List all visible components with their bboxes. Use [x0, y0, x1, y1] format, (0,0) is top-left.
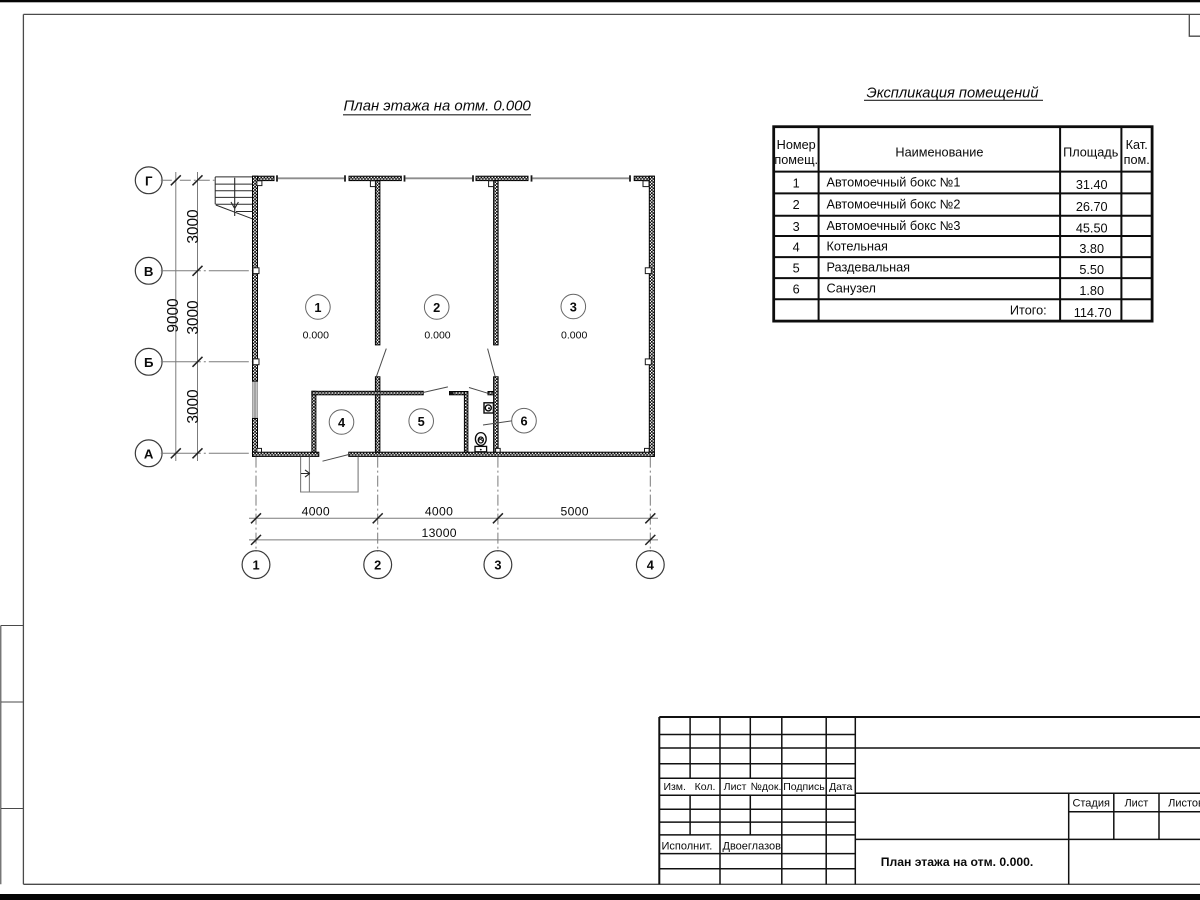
svg-text:Площадь: Площадь [1063, 145, 1119, 159]
svg-text:План этажа на отм. 0.000.: План этажа на отм. 0.000. [881, 855, 1034, 869]
svg-text:13000: 13000 [422, 526, 457, 540]
svg-text:5: 5 [793, 262, 800, 276]
svg-text:Стадия: Стадия [1072, 798, 1110, 810]
svg-text:Наименование: Наименование [895, 145, 983, 159]
svg-text:5.50: 5.50 [1079, 263, 1104, 277]
svg-text:помещ.: помещ. [774, 153, 818, 167]
svg-text:План этажа на отм. 0.000: План этажа на отм. 0.000 [344, 98, 532, 114]
svg-text:2: 2 [433, 300, 440, 315]
svg-text:2: 2 [793, 198, 800, 212]
svg-text:Листов: Листов [1168, 798, 1200, 810]
svg-text:Дата: Дата [829, 781, 852, 793]
svg-text:114.70: 114.70 [1074, 306, 1112, 320]
svg-text:3.80: 3.80 [1079, 242, 1104, 256]
svg-text:3000: 3000 [185, 300, 202, 334]
svg-text:Автомоечный бокс №2: Автомоечный бокс №2 [827, 197, 961, 211]
svg-text:В: В [144, 264, 154, 279]
svg-text:3000: 3000 [185, 209, 202, 243]
svg-text:3: 3 [494, 558, 501, 573]
svg-text:Котельная: Котельная [827, 240, 888, 254]
svg-text:№док.: №док. [751, 781, 782, 793]
svg-text:1: 1 [314, 300, 321, 315]
svg-text:Санузел: Санузел [827, 282, 876, 296]
svg-text:Номер: Номер [777, 138, 816, 152]
svg-text:Автомоечный бокс №1: Автомоечный бокс №1 [827, 176, 961, 190]
svg-text:Лист: Лист [724, 781, 747, 793]
svg-text:пом.: пом. [1124, 153, 1150, 167]
svg-text:1: 1 [793, 176, 800, 190]
svg-text:Г: Г [145, 173, 153, 188]
svg-text:4: 4 [338, 415, 346, 430]
svg-text:5000: 5000 [561, 505, 589, 519]
svg-text:26.70: 26.70 [1076, 200, 1108, 214]
svg-text:31.40: 31.40 [1076, 178, 1108, 192]
svg-text:Автомоечный бокс №3: Автомоечный бокс №3 [827, 219, 961, 233]
svg-text:1: 1 [252, 558, 259, 573]
svg-text:4000: 4000 [302, 505, 330, 519]
svg-text:Лист: Лист [1124, 798, 1148, 810]
svg-text:2: 2 [374, 558, 381, 573]
svg-text:Кол.: Кол. [695, 781, 716, 793]
svg-text:Двоеглазов: Двоеглазов [723, 841, 782, 853]
svg-text:0.000: 0.000 [424, 329, 450, 341]
svg-text:4000: 4000 [425, 505, 453, 519]
svg-text:9000: 9000 [165, 298, 182, 332]
svg-text:Кат.: Кат. [1126, 138, 1148, 152]
svg-text:3000: 3000 [185, 389, 202, 423]
svg-text:45.50: 45.50 [1076, 222, 1108, 236]
svg-text:Итого:: Итого: [1010, 304, 1047, 318]
svg-text:1.80: 1.80 [1079, 284, 1104, 298]
svg-text:Изм.: Изм. [663, 781, 686, 793]
svg-text:4: 4 [793, 240, 800, 254]
svg-text:0.000: 0.000 [303, 329, 329, 341]
svg-text:Б: Б [144, 355, 154, 370]
svg-text:Подпись: Подпись [783, 781, 825, 793]
svg-text:4: 4 [647, 558, 655, 573]
svg-text:6: 6 [793, 283, 800, 297]
svg-text:0.000: 0.000 [561, 329, 587, 341]
svg-text:6: 6 [520, 414, 527, 429]
svg-text:А: А [144, 446, 154, 461]
svg-text:Раздевальная: Раздевальная [827, 261, 911, 275]
svg-text:Исполнит.: Исполнит. [662, 841, 713, 853]
svg-text:5: 5 [418, 414, 425, 429]
svg-text:3: 3 [570, 300, 577, 315]
svg-text:Экспликация помещений: Экспликация помещений [867, 86, 1039, 102]
svg-text:3: 3 [793, 220, 800, 234]
